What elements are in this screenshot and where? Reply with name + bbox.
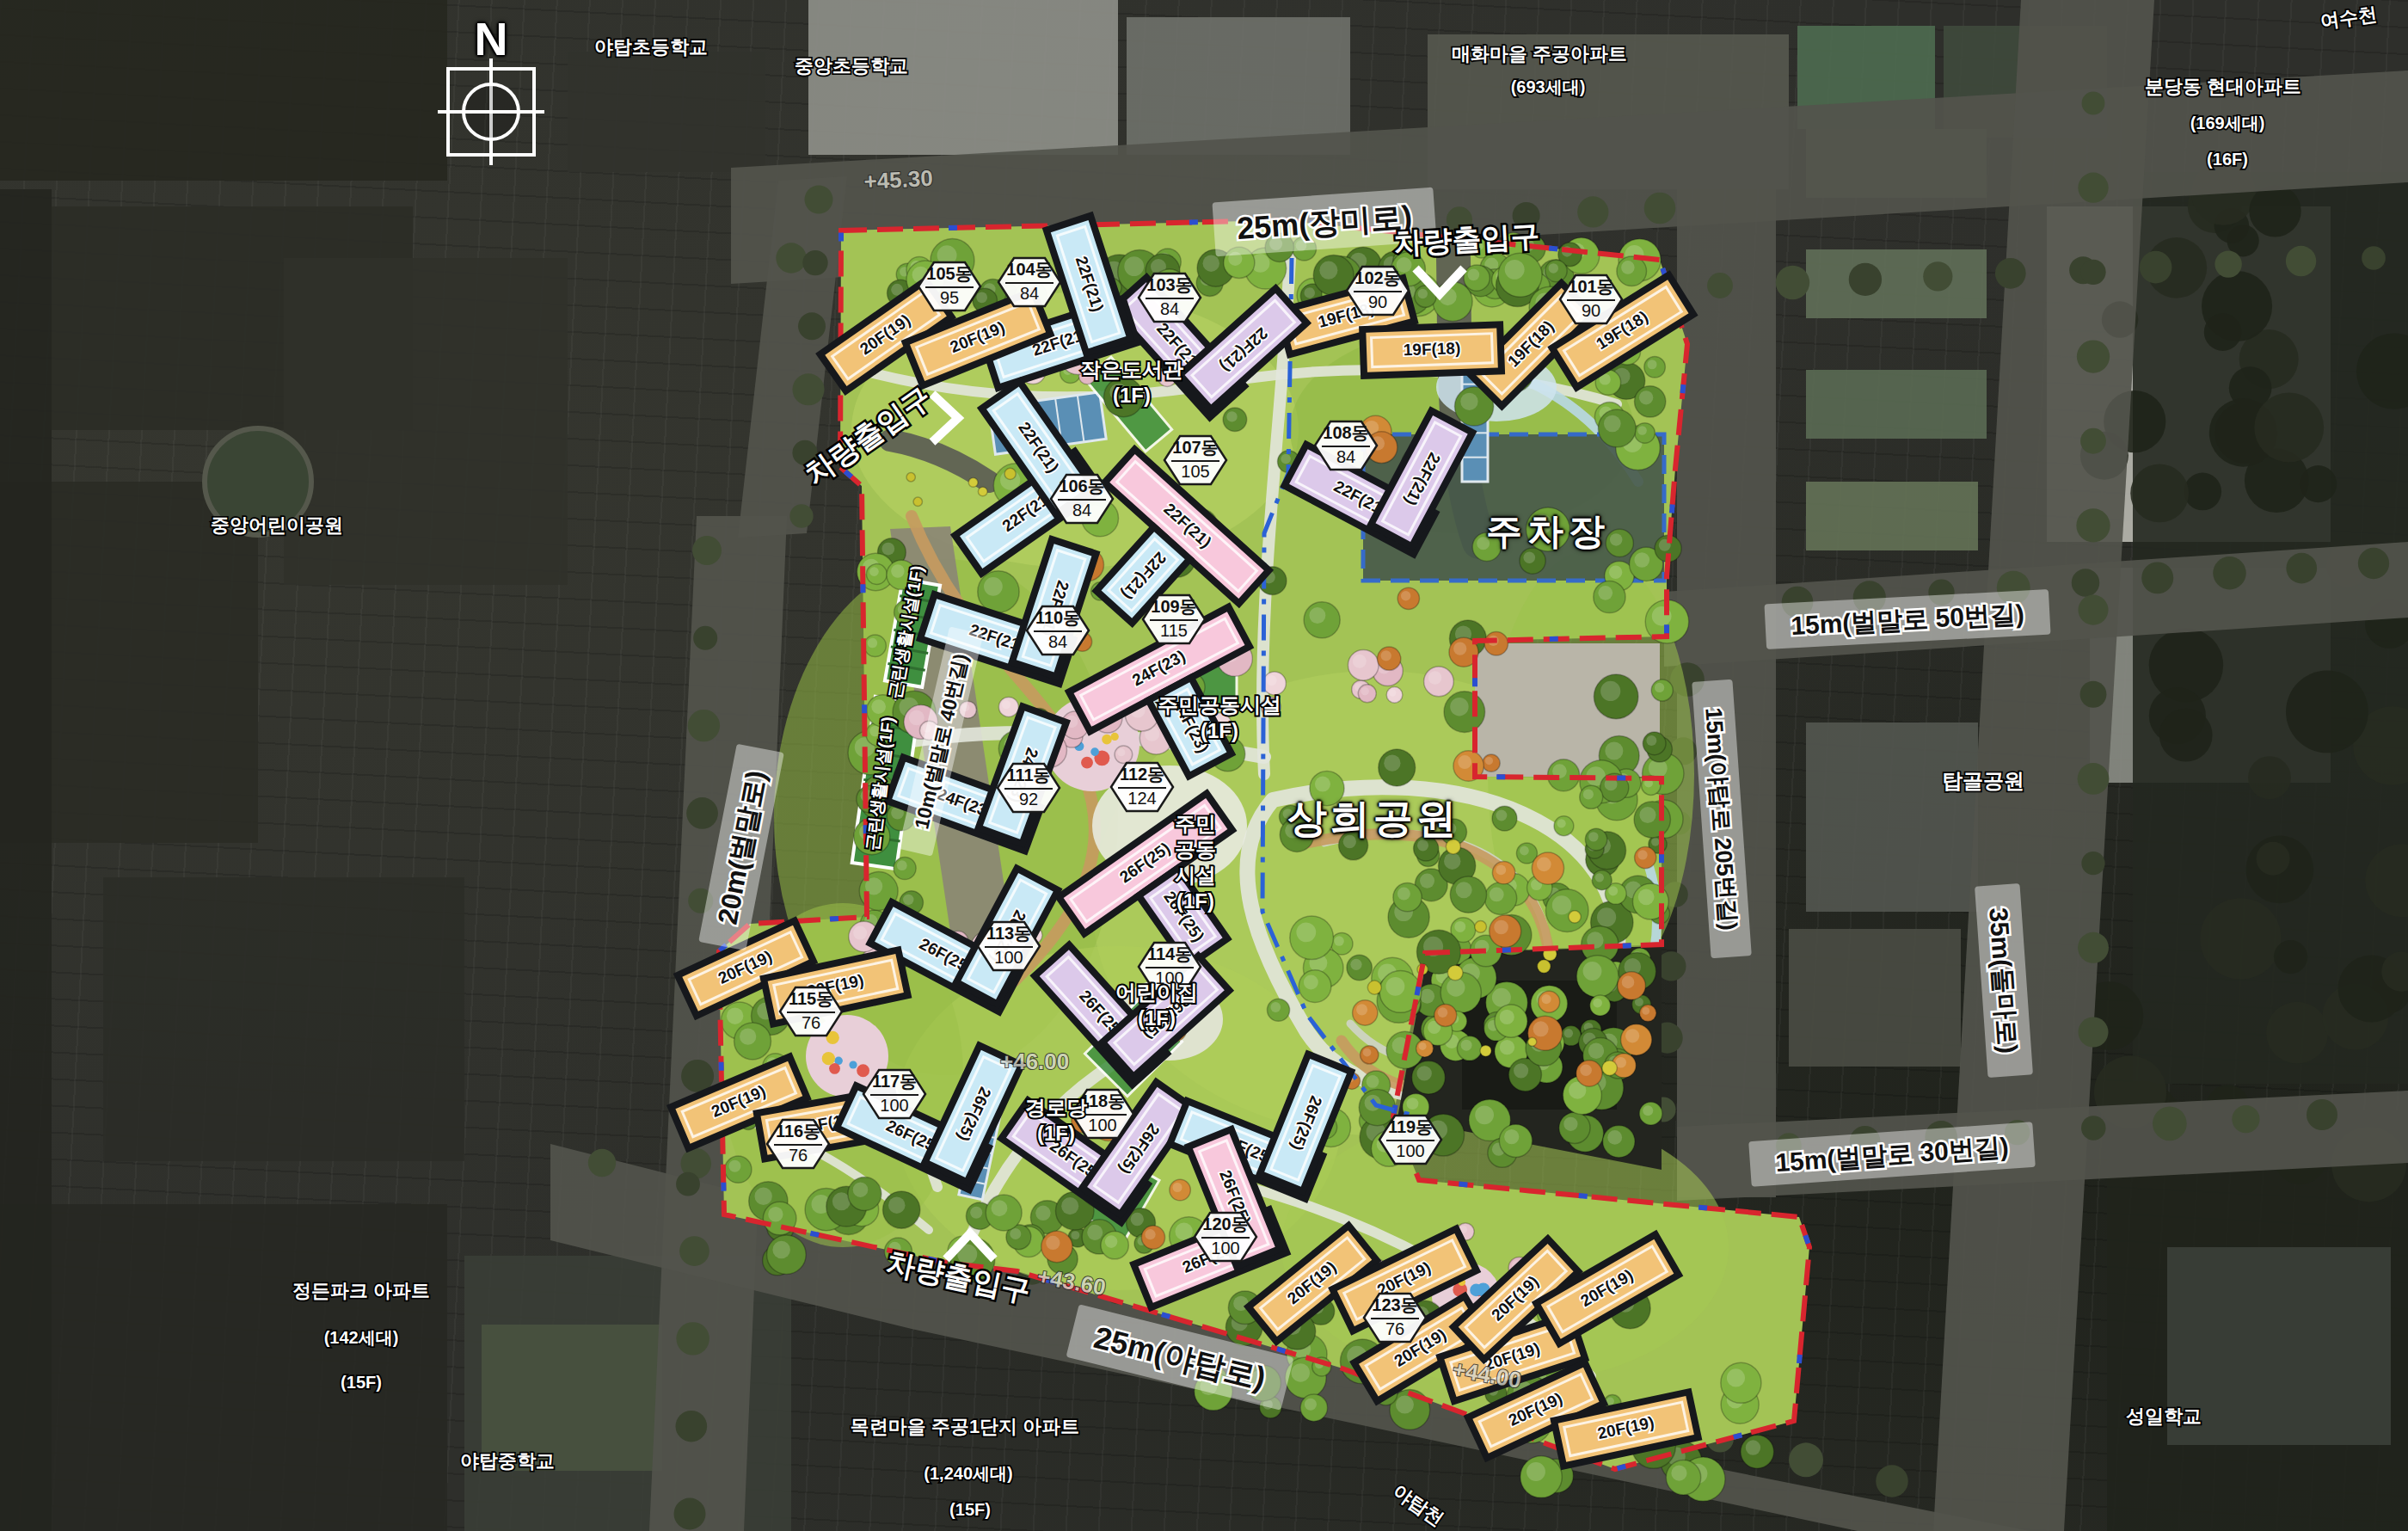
svg-text:102동: 102동 (1354, 268, 1400, 287)
svg-text:104동: 104동 (1006, 260, 1052, 279)
context-label: (169세대) (2190, 114, 2265, 132)
svg-text:76: 76 (1385, 1319, 1404, 1338)
svg-text:주민공동시설: 주민공동시설 (1158, 693, 1281, 716)
context-label: (693세대) (1511, 77, 1586, 96)
svg-text:(1F): (1F) (1113, 384, 1151, 407)
parking-lot-label: 주차장 (1486, 507, 1610, 556)
svg-text:108동: 108동 (1323, 423, 1368, 442)
elevation-marker: +46.00 (1000, 1048, 1069, 1074)
svg-text:113동: 113동 (986, 924, 1031, 943)
context-label: 중앙초등학교 (795, 55, 908, 77)
svg-text:76: 76 (802, 1013, 820, 1032)
svg-text:시설: 시설 (1175, 864, 1216, 887)
svg-text:작은도서관: 작은도서관 (1080, 358, 1183, 381)
svg-text:84: 84 (1336, 447, 1355, 466)
context-label: (15F) (949, 1500, 991, 1519)
park-name-label: 상희공원 (1287, 792, 1459, 845)
svg-text:(1F): (1F) (1201, 719, 1238, 742)
svg-text:84: 84 (1020, 284, 1039, 303)
svg-text:110동: 110동 (1035, 608, 1080, 627)
site-plan-canvas: 19F(18)19F(18)19F(18)19F(18)22F(21)22F(2… (0, 0, 2408, 1531)
context-label: (16F) (2207, 150, 2248, 169)
svg-text:90: 90 (1368, 292, 1387, 311)
elevation-marker: +45.30 (863, 165, 934, 194)
svg-text:100: 100 (1396, 1141, 1424, 1160)
context-label: 목련마을 주공1단지 아파트 (851, 1416, 1079, 1437)
context-label: 탑골공원 (1942, 769, 2024, 792)
svg-text:100: 100 (994, 948, 1023, 967)
svg-text:92: 92 (1019, 790, 1038, 809)
svg-text:103동: 103동 (1146, 275, 1192, 294)
svg-text:114동: 114동 (1147, 944, 1192, 963)
compass-dial-icon (446, 67, 536, 157)
context-label: (15F) (341, 1373, 382, 1392)
svg-text:경로당: 경로당 (1025, 1096, 1087, 1119)
svg-text:116동: 116동 (776, 1122, 820, 1141)
svg-text:123동: 123동 (1372, 1295, 1417, 1314)
svg-text:109동: 109동 (1151, 597, 1196, 616)
svg-text:101동: 101동 (1568, 277, 1613, 296)
svg-text:84: 84 (1048, 632, 1067, 651)
context-label: 여수천 (2319, 3, 2379, 33)
context-label: 성일학교 (2126, 1405, 2202, 1427)
site-plan-drawing: 19F(18)19F(18)19F(18)19F(18)22F(21)22F(2… (0, 0, 2408, 1531)
context-label: (142세대) (324, 1328, 399, 1347)
svg-text:112동: 112동 (1120, 765, 1164, 784)
context-label: (1,240세대) (924, 1464, 1012, 1483)
svg-text:117동: 117동 (872, 1072, 917, 1091)
svg-text:111동: 111동 (1006, 765, 1050, 784)
svg-text:(1F): (1F) (1176, 889, 1214, 913)
context-label: 야탑천 (1389, 1480, 1447, 1530)
svg-text:76: 76 (789, 1146, 808, 1165)
svg-text:어린이집: 어린이집 (1115, 981, 1198, 1004)
compass-north-label: N (444, 15, 538, 62)
svg-text:(1F): (1F) (1138, 1006, 1176, 1030)
svg-text:100: 100 (880, 1096, 908, 1115)
svg-text:(1F): (1F) (1037, 1122, 1075, 1145)
svg-text:115: 115 (1160, 621, 1188, 640)
svg-text:주민: 주민 (1175, 812, 1216, 835)
svg-text:84: 84 (1160, 299, 1179, 318)
svg-text:115동: 115동 (789, 989, 833, 1008)
svg-text:107동: 107동 (1172, 438, 1218, 457)
compass: N (444, 15, 538, 157)
svg-text:84: 84 (1072, 501, 1091, 520)
svg-text:90: 90 (1582, 301, 1600, 320)
svg-text:119동: 119동 (1388, 1117, 1433, 1136)
context-label: 야탑중학교 (460, 1450, 555, 1472)
floor-label: 19F(18) (1403, 339, 1460, 359)
svg-text:95: 95 (940, 288, 959, 307)
svg-text:100: 100 (1211, 1239, 1239, 1257)
svg-text:105: 105 (1181, 462, 1209, 481)
svg-text:120동: 120동 (1202, 1214, 1248, 1233)
svg-text:106동: 106동 (1059, 477, 1104, 495)
context-label: 매화마을 주공아파트 (1452, 43, 1627, 65)
context-label: 야탑초등학교 (594, 36, 708, 58)
context-label: 정든파크 아파트 (292, 1280, 430, 1301)
svg-text:124: 124 (1127, 789, 1156, 808)
svg-text:공동: 공동 (1175, 838, 1216, 861)
svg-text:100: 100 (1088, 1116, 1116, 1134)
context-label: 중앙어린이공원 (211, 514, 343, 536)
svg-text:105동: 105동 (926, 264, 972, 283)
context-label: 분당동 현대아파트 (2145, 76, 2301, 97)
